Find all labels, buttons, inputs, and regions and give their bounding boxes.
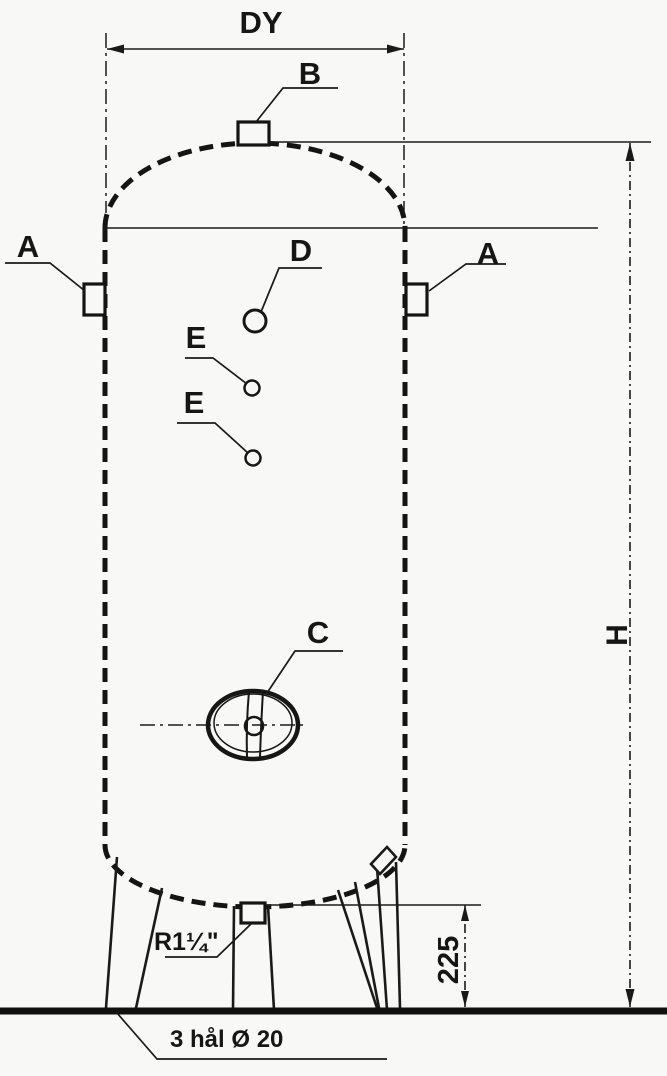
opening-d: [244, 310, 266, 332]
leg-right-back-outer-line: [338, 890, 377, 1008]
leader-d: [261, 268, 322, 312]
nozzle-drain: [241, 903, 265, 923]
leader-b: [256, 88, 338, 122]
dy-dimension: DY: [106, 5, 404, 226]
vessel-bottom-head: [105, 845, 405, 907]
label-b: B: [299, 56, 321, 91]
leg-right-front-outer-line: [396, 862, 400, 1008]
leg-left-outer-line: [106, 857, 117, 1008]
vessel-outline: [105, 143, 405, 907]
manhole-inner-ring: [214, 694, 292, 752]
drawing-canvas: DY H 225: [0, 0, 667, 1076]
leader-a-left: [5, 263, 85, 291]
leader-e-upper: [185, 358, 247, 384]
leader-c: [267, 651, 343, 693]
dy-label: DY: [239, 5, 282, 40]
label-c: C: [307, 615, 329, 650]
h-label: H: [601, 624, 634, 646]
leg-height-dimension: 225: [433, 905, 469, 1007]
label-a-left: A: [17, 229, 39, 264]
label-e-lower: E: [184, 385, 205, 420]
manhole: [140, 691, 307, 759]
label-a-right: A: [477, 236, 499, 271]
leg-height-label: 225: [433, 936, 465, 984]
leg-right-back-inner-line: [355, 882, 379, 1008]
h-arrow-bottom: [626, 989, 635, 1007]
leg-center-left-line: [233, 906, 234, 1010]
h-arrow-top: [626, 143, 635, 161]
label-d: D: [290, 233, 312, 268]
nozzle-a-right: [406, 284, 427, 315]
leg-right-front-inner-line: [377, 867, 387, 1010]
leader-e-lower: [177, 423, 248, 453]
label-e-upper: E: [186, 320, 207, 355]
dy-arrow-right: [387, 45, 404, 54]
leg-height-arrow-bottom: [461, 991, 469, 1007]
leg-height-arrow-top: [461, 905, 469, 921]
vessel-top-head: [105, 143, 405, 228]
nozzle-a-left: [84, 284, 105, 315]
label-drain-size: R1¼": [154, 928, 219, 956]
label-foot-holes: 3 hål Ø 20: [170, 1026, 283, 1053]
leg-center-right-line: [268, 906, 274, 1010]
nozzle-b: [238, 122, 269, 145]
support-legs: [106, 847, 400, 1010]
dy-arrow-left: [107, 45, 124, 54]
h-dimension: H: [601, 143, 635, 1007]
manhole-yoke-left-edge: [247, 691, 249, 758]
tank-technical-drawing: DY H 225: [0, 0, 667, 1076]
